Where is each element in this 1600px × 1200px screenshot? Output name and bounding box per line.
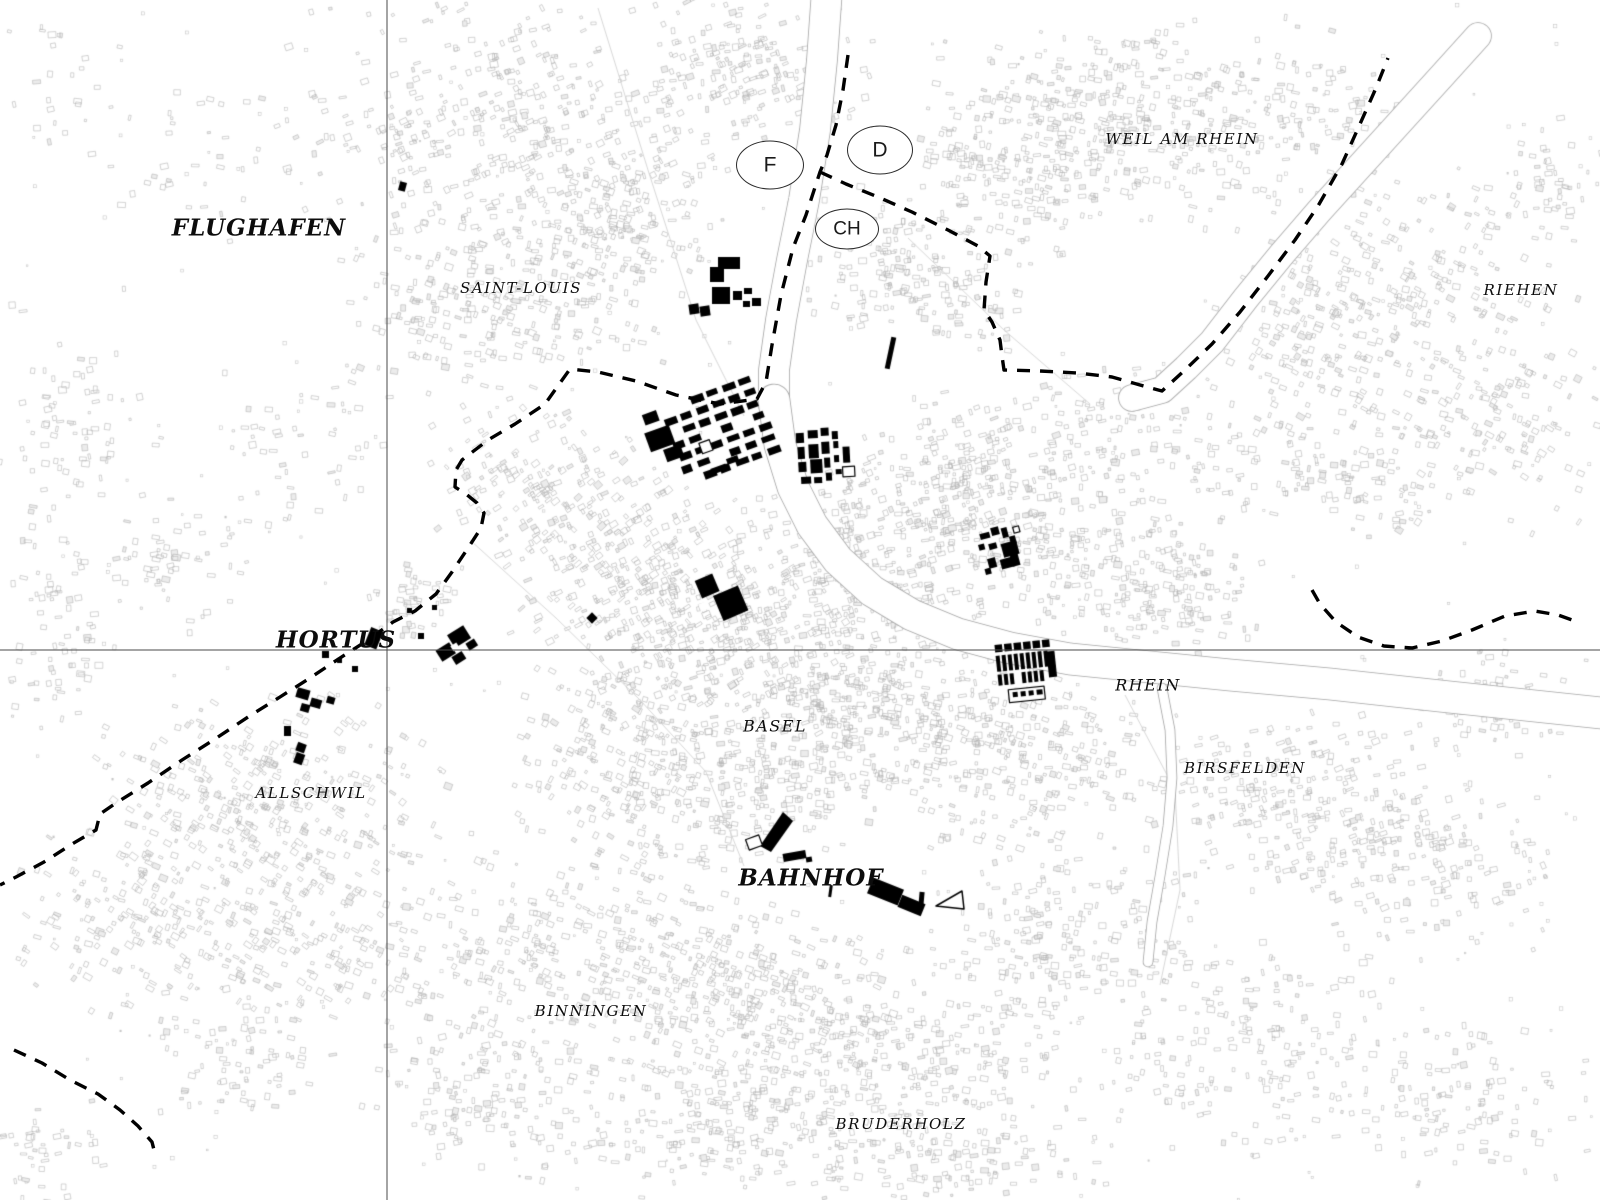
map-base-canvas: [0, 0, 1600, 1200]
map-stage: FLUGHAFENSAINT-LOUISWEIL AM RHEINRIEHENH…: [0, 0, 1600, 1200]
